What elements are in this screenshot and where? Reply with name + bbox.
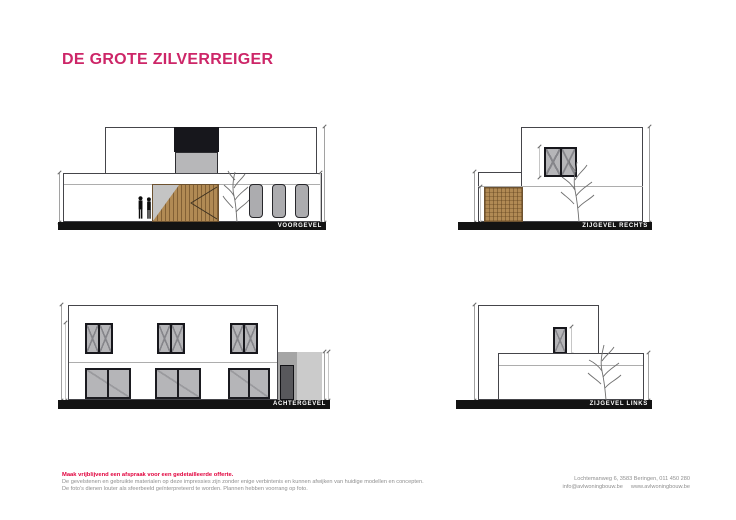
mullion (107, 370, 109, 397)
people-silhouette-icon (136, 194, 154, 222)
window-dimension (539, 147, 540, 177)
ground-line: ZIJGEVEL RECHTS (458, 222, 652, 230)
footer-disclaimer-line2: De foto's dienen louter als sfeerbeeld g… (62, 486, 482, 493)
gate-swing-lines (153, 185, 218, 221)
ground-line: ACHTERGEVEL (58, 400, 330, 409)
dimension-line-right-annex (324, 352, 325, 400)
elevation-voorgevel: VOORGEVEL (56, 118, 328, 234)
dimension-line-right-inner (320, 173, 321, 222)
elevation-achtergevel: ACHTERGEVEL (56, 296, 332, 415)
narrow-window-2 (272, 184, 286, 218)
footer-disclaimer-line1: De gevelstenen en gebruikte materialen o… (62, 479, 482, 486)
dimension-line-right (649, 127, 650, 222)
wood-cladding (152, 184, 219, 222)
window-pane (87, 325, 98, 352)
footer-disclaimer: Maak vrijblijvend een afspraak voor een … (62, 472, 482, 493)
page-title: DE GROTE ZILVERREIGER (62, 51, 273, 69)
dimension-line-left (474, 305, 475, 400)
dimension-line-right-outer (324, 127, 325, 222)
dimension-line-right (648, 353, 649, 400)
dimension-line-left-outer (61, 305, 62, 400)
upper-window-1 (85, 323, 113, 354)
annex-door (280, 365, 294, 400)
footer-website: www.avlwoningbouw.be (631, 484, 690, 490)
ground-line: ZIJGEVEL LINKS (456, 400, 652, 409)
sliding-door-2 (155, 368, 201, 399)
dimension-line-left-inner (65, 323, 66, 400)
window-pane (232, 325, 243, 352)
window-pane (245, 325, 256, 352)
brochure-sheet: DE GROTE ZILVERREIGER (0, 0, 736, 520)
footer-address: Lochtemanweg 6, 3583 Beringen, 011 450 2… (562, 475, 690, 483)
elevation-label-zijgevel-links: ZIJGEVEL LINKS (590, 400, 652, 409)
footer-cta-line: Maak vrijblijvend een afspraak voor een … (62, 472, 482, 479)
upper-window-dark-panel (174, 127, 219, 152)
elevation-label-achtergevel: ACHTERGEVEL (273, 400, 330, 409)
elevation-label-voorgevel: VOORGEVEL (278, 222, 326, 230)
narrow-window-1 (249, 184, 263, 218)
elevation-zijgevel-links: ZIJGEVEL LINKS (456, 296, 656, 415)
elevation-label-zijgevel-rechts: ZIJGEVEL RECHTS (582, 222, 652, 230)
upper-window-3 (230, 323, 258, 354)
mullion (177, 370, 179, 397)
footer-email: info@avlwoningbouw.be (562, 484, 622, 490)
upper-narrow-window (553, 327, 567, 354)
window-pane (555, 329, 565, 352)
dimension-line-left (474, 172, 475, 222)
ground-line: VOORGEVEL (58, 222, 326, 230)
footer-contact: Lochtemanweg 6, 3583 Beringen, 011 450 2… (562, 475, 690, 491)
sliding-door-1 (85, 368, 131, 399)
dimension-line-wood (480, 187, 481, 222)
wood-cladding (484, 187, 523, 222)
window-pane (159, 325, 170, 352)
window-dimension (571, 327, 572, 354)
window-pane (100, 325, 111, 352)
window-pane (172, 325, 183, 352)
elevation-zijgevel-rechts: ZIJGEVEL RECHTS (458, 118, 656, 234)
mullion (248, 370, 250, 397)
dimension-line-left (59, 173, 60, 222)
tree-sketch (581, 340, 629, 400)
upper-window-2 (157, 323, 185, 354)
sliding-door-3 (228, 368, 270, 399)
floor-line (69, 362, 277, 363)
tree-sketch (553, 156, 603, 222)
narrow-window-3 (295, 184, 309, 218)
dimension-line-right-outer (328, 352, 329, 400)
